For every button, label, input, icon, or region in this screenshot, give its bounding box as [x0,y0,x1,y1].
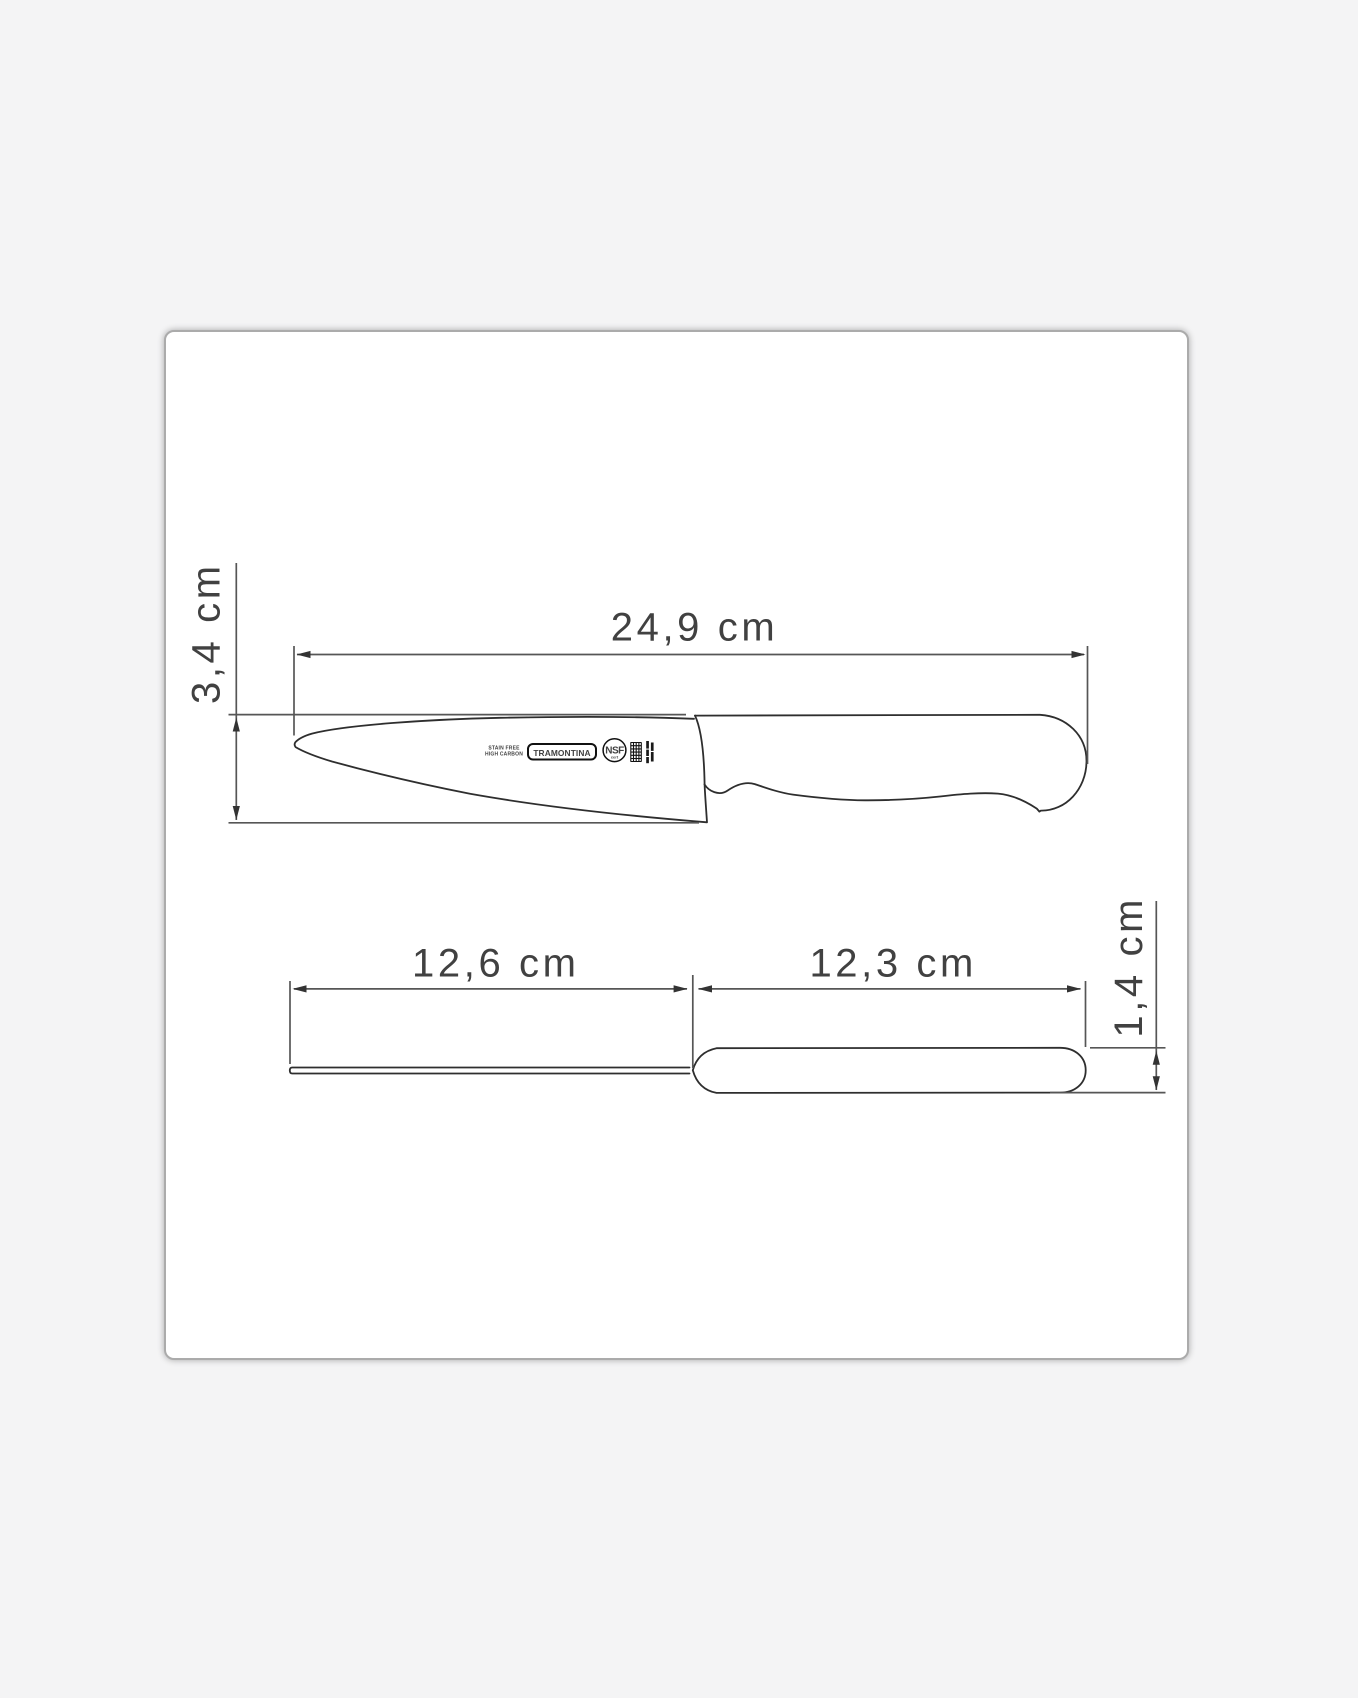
svg-text:3,4 cm: 3,4 cm [185,562,229,704]
svg-text:1,4 cm: 1,4 cm [1107,896,1151,1038]
svg-text:cert: cert [611,755,619,760]
svg-text:HIGH CARBON: HIGH CARBON [485,752,523,758]
svg-text:24,9 cm: 24,9 cm [611,606,779,650]
svg-text:12,3 cm: 12,3 cm [809,942,977,986]
svg-text:TRAMONTINA: TRAMONTINA [533,748,590,758]
svg-text:12,6 cm: 12,6 cm [412,942,580,986]
